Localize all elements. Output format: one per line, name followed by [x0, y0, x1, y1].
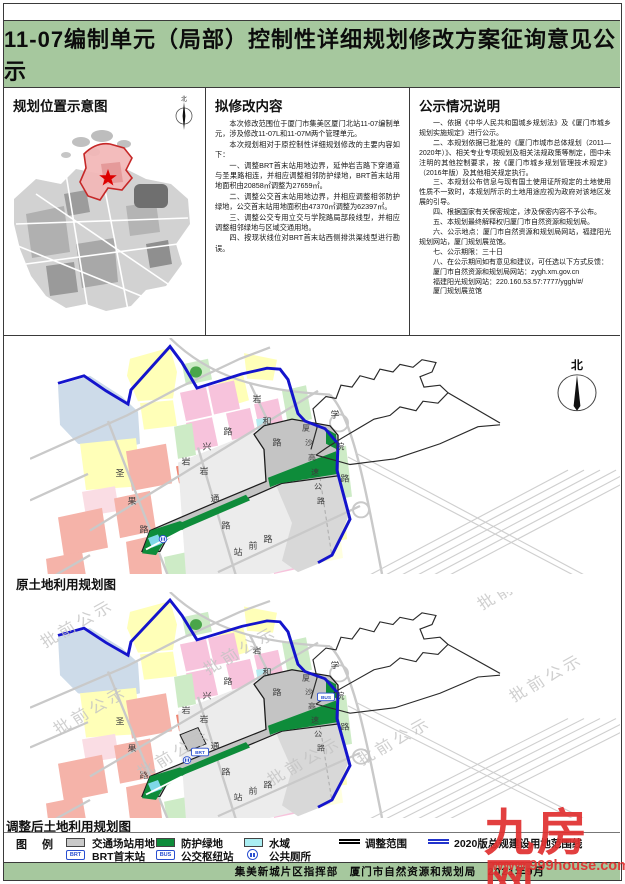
svg-text:公: 公 [314, 730, 322, 739]
svg-text:果: 果 [128, 744, 137, 753]
paragraph: 八、在公示期间如有意见和建议，可任选以下方式反馈： [419, 258, 611, 268]
title-bar: 11-07编制单元（局部）控制性详细规划修改方案征询意见公示 [4, 20, 620, 88]
svg-text:站: 站 [234, 791, 243, 801]
svg-text:路: 路 [341, 473, 350, 484]
panel-location: 规划位置示意图 北 [4, 88, 205, 335]
panel-modification: 拟修改内容 本次修改范围位于厦门市集美区厦门北站11-07编制单元，涉及修改11… [205, 88, 410, 335]
site-watermark-url: www.999house.com [492, 858, 625, 874]
svg-text:岩: 岩 [182, 705, 191, 715]
panel-modification-heading: 拟修改内容 [215, 95, 400, 115]
svg-text:速: 速 [311, 716, 319, 725]
svg-text:高: 高 [308, 701, 316, 710]
svg-text:路: 路 [264, 533, 273, 544]
paragraph: 厦门市自然资源和规划局网站：zygh.xm.gov.cn [419, 268, 611, 278]
legend-brt-badge: BRT [66, 850, 85, 860]
paragraph: 厦门规划展览馆 [419, 287, 611, 297]
svg-text:高: 高 [308, 452, 316, 462]
original-map-label: 原土地利用规划图 [16, 574, 116, 593]
svg-text:兴: 兴 [203, 691, 212, 700]
svg-text:岩: 岩 [253, 393, 262, 404]
svg-text:院: 院 [336, 441, 345, 452]
svg-text:站: 站 [234, 546, 243, 557]
svg-text:和: 和 [263, 667, 272, 676]
notice-paragraphs: 一、依据《中华人民共和国城乡规划法》及《厦门市城乡规划实施规定》进行公示。二、本… [419, 119, 611, 297]
paragraph: 一、调整BRT首末站用地边界，延伸岩吉路下穿通道与圣果路相连，并相应调整相邻防护… [215, 161, 400, 192]
paragraph: 四、根据国家有关保密规定，涉及保密内容不予公布。 [419, 208, 611, 218]
panel-notice: 公示情况说明 一、依据《中华人民共和国城乡规划法》及《厦门市城乡规划实施规定》进… [410, 88, 620, 335]
svg-text:通: 通 [211, 494, 220, 504]
svg-text:圣: 圣 [116, 468, 125, 478]
svg-text:圣: 圣 [116, 716, 125, 725]
svg-text:BUS: BUS [321, 695, 331, 700]
svg-text:学: 学 [331, 659, 340, 669]
svg-text:北: 北 [571, 358, 583, 372]
svg-text:北: 北 [181, 95, 187, 103]
legend-bus-badge: BUS [156, 850, 175, 860]
svg-text:路: 路 [140, 524, 149, 535]
legend-line-adjust-range [339, 839, 360, 844]
paragraph: 本次规划相对于原控制性详细规划修改的主要内容如下： [215, 140, 400, 161]
public-notice-page: 11-07编制单元（局部）控制性详细规划修改方案征询意见公示 规划位置示意图 北 [0, 0, 625, 884]
paragraph: 六、公示地点：厦门市自然资源和规划局网站，福建阳光规划网站，厦门规划展览馆。 [419, 228, 611, 248]
page-title: 11-07编制单元（局部）控制性详细规划修改方案征询意见公示 [4, 22, 620, 86]
legend-swatch-water [244, 838, 263, 847]
paragraph: 七、公示期限：三十日 [419, 248, 611, 258]
legend-swatch-green-buffer [156, 838, 175, 847]
svg-text:院: 院 [336, 690, 345, 700]
svg-text:路: 路 [224, 676, 233, 686]
svg-text:路: 路 [341, 721, 350, 731]
svg-text:BRT: BRT [195, 750, 205, 755]
svg-text:路: 路 [273, 687, 282, 697]
svg-text:速: 速 [311, 468, 319, 477]
paragraph: 二、调整公交首末站用地边界，并相应调整相邻防护绿地，公交首末站用地面积由4737… [215, 192, 400, 213]
toilet-icon [159, 535, 167, 542]
adjusted-landuse-map: 圣果路岩兴路岩通路岩和路站前路厦沙高速公路学院路批前公示批前公示批前公示批前公示… [30, 592, 620, 818]
svg-text:公: 公 [314, 482, 322, 491]
svg-text:路: 路 [222, 766, 231, 776]
svg-text:厦: 厦 [302, 674, 310, 683]
svg-text:果: 果 [128, 496, 137, 506]
legend-heading: 图 例 [16, 836, 55, 852]
svg-text:前: 前 [249, 540, 258, 551]
legend-label-adjust-range: 调整范围 [365, 836, 407, 851]
legend-swatch-transport [66, 838, 85, 847]
paragraph: 福建阳光规划网站：220.160.53.57:7777/yggh/#/ [419, 278, 611, 288]
svg-text:岩: 岩 [200, 465, 209, 476]
paragraph: 二、本规划依据已批准的《厦门市城市总体规划（2011—2020年）》、相关专业专… [419, 139, 611, 179]
original-landuse-map: 圣果路岩兴路岩通路岩和路站前路厦沙高速公路学院路北 [30, 338, 620, 574]
paragraph: 三、本规划公布信息与现有国土使用证所规定的土地使用性质不一致时，本规划所示的土地… [419, 178, 611, 208]
panel-notice-heading: 公示情况说明 [419, 95, 611, 115]
locator-landmass [14, 130, 190, 311]
svg-text:岩: 岩 [200, 714, 209, 724]
locator-dark-district [134, 184, 168, 208]
svg-text:路: 路 [222, 520, 231, 531]
paragraph: 一、依据《中华人民共和国城乡规划法》及《厦门市城乡规划实施规定》进行公示。 [419, 119, 611, 139]
paragraph: 本次修改范围位于厦门市集美区厦门北站11-07编制单元，涉及修改11-07L和1… [215, 119, 400, 140]
legend-toilet-icon [247, 849, 258, 860]
svg-text:前: 前 [249, 785, 258, 795]
svg-text:沙: 沙 [305, 688, 313, 697]
svg-text:和: 和 [263, 416, 272, 426]
svg-text:厦: 厦 [302, 424, 310, 433]
paragraph: 三、调整公交专用立交与学院路局部段线型，并相应调整相邻绿地与区域交通用地。 [215, 213, 400, 234]
locator-map [6, 124, 200, 330]
modification-paragraphs: 本次修改范围位于厦门市集美区厦门北站11-07编制单元，涉及修改11-07L和1… [215, 119, 400, 254]
svg-text:路: 路 [273, 437, 282, 448]
legend-line-master-plan [428, 839, 449, 844]
svg-text:学: 学 [331, 409, 340, 420]
panel-location-heading: 规划位置示意图 [13, 95, 196, 115]
svg-text:兴: 兴 [203, 442, 212, 452]
svg-text:路: 路 [317, 496, 325, 506]
info-columns: 规划位置示意图 北 [4, 88, 620, 336]
svg-text:岩: 岩 [182, 456, 191, 467]
paragraph: 五、本规划最终解释权归厦门市自然资源和规划局。 [419, 218, 611, 228]
paragraph: 四、按现状线位对BRT首末站西侧排洪渠线型进行勘误。 [215, 233, 400, 254]
svg-text:沙: 沙 [305, 438, 313, 447]
svg-text:路: 路 [224, 426, 233, 437]
